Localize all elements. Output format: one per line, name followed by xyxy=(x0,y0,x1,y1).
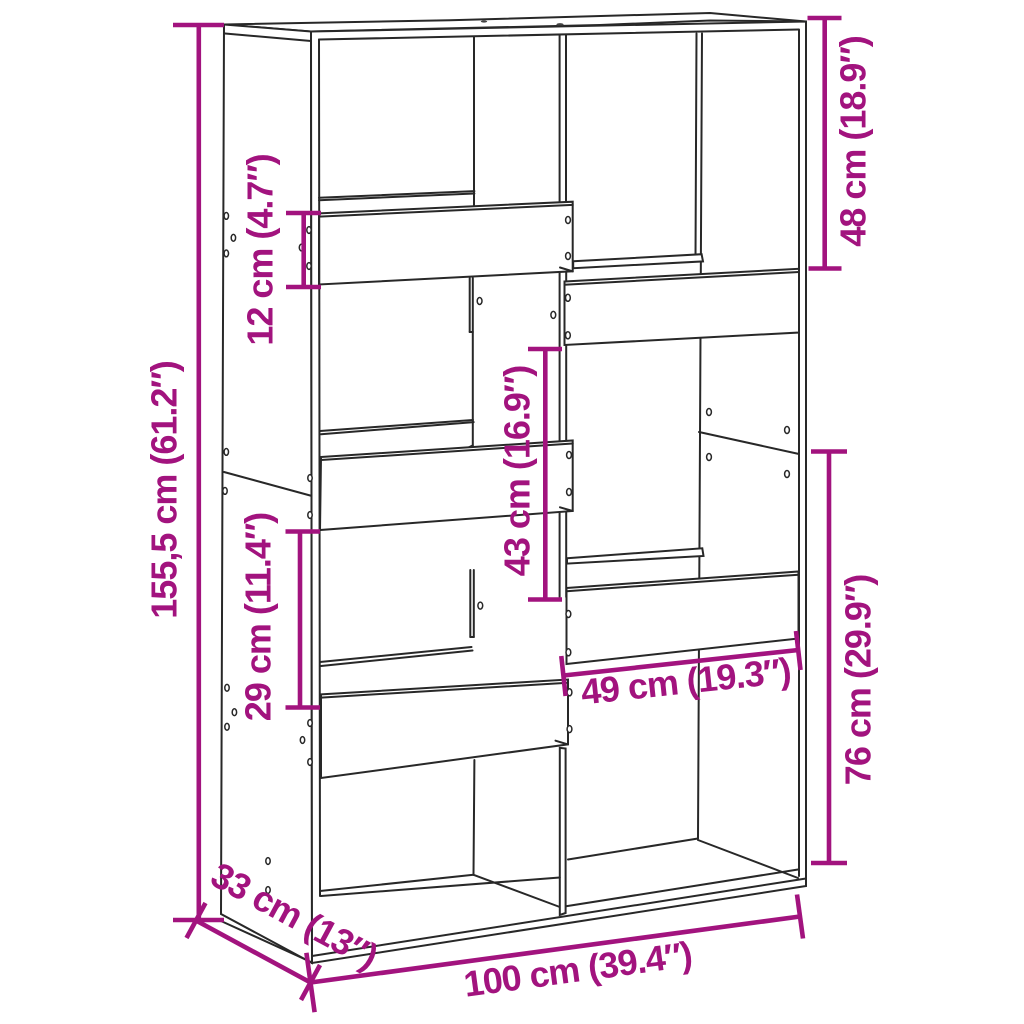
svg-text:29 cm (11.4″): 29 cm (11.4″) xyxy=(238,513,279,721)
svg-text:155,5 cm (61.2″): 155,5 cm (61.2″) xyxy=(144,361,185,618)
svg-text:76 cm (29.9″): 76 cm (29.9″) xyxy=(838,575,879,785)
svg-text:48 cm (18.9″): 48 cm (18.9″) xyxy=(833,36,874,246)
svg-text:12 cm (4.7″): 12 cm (4.7″) xyxy=(240,154,281,345)
svg-text:43 cm (16.9″): 43 cm (16.9″) xyxy=(497,366,538,576)
